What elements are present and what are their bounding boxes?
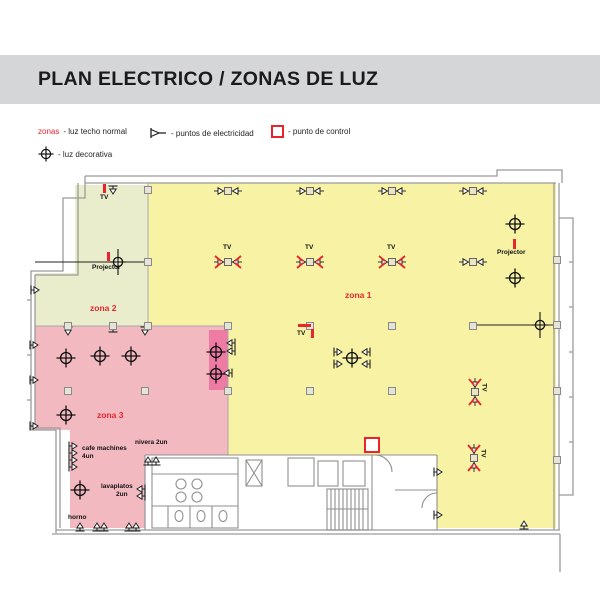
column-marker	[553, 456, 561, 464]
column-marker	[553, 321, 561, 329]
plan-label: Projector	[497, 250, 526, 257]
electric-point-icon	[333, 346, 343, 358]
tv-point-icon	[295, 254, 325, 270]
electric-point-icon	[361, 346, 371, 358]
tv-label: TV	[223, 245, 231, 252]
column-marker	[64, 322, 72, 330]
plan-label: Projector	[92, 265, 121, 272]
electric-point-icon	[361, 358, 371, 370]
column-marker	[553, 387, 561, 395]
electric-point-icon	[130, 522, 142, 532]
decorative-light-icon	[70, 480, 90, 500]
plan-label: nivera 2un	[135, 440, 168, 447]
column-marker	[306, 387, 314, 395]
electric-point-icon	[226, 345, 236, 357]
tv-point-icon	[213, 254, 243, 270]
tv-point-icon	[466, 443, 482, 473]
decorative-light-icon	[56, 348, 76, 368]
red-mark	[298, 324, 311, 327]
tv-point-icon	[467, 377, 483, 407]
tv-label: TV	[387, 245, 395, 252]
electric-point-icon	[223, 367, 233, 379]
plan-label: zona 1	[345, 291, 371, 300]
electric-point-icon	[68, 461, 78, 473]
electric-point-icon	[29, 339, 39, 351]
decorative-light-icon	[121, 346, 141, 366]
electric-point-icon	[458, 183, 488, 199]
plan-label: TV	[100, 195, 108, 202]
column-marker	[469, 322, 477, 330]
column-marker	[109, 322, 117, 330]
column-marker	[388, 387, 396, 395]
electric-point-icon	[29, 420, 39, 432]
red-mark	[103, 184, 106, 193]
electric-point-icon	[98, 522, 110, 532]
electric-point-icon	[29, 374, 39, 386]
electric-point-icon	[433, 509, 443, 521]
electric-point-icon	[136, 490, 146, 502]
plan-label: lavaplatos	[101, 484, 133, 491]
electric-point-icon	[150, 456, 162, 466]
plan-label: zona 3	[97, 411, 123, 420]
electric-point-icon	[433, 466, 443, 478]
electric-point-icon	[518, 520, 530, 530]
tv-point-icon	[377, 254, 407, 270]
column-marker	[64, 387, 72, 395]
column-marker	[144, 186, 152, 194]
column-marker	[144, 322, 152, 330]
decorative-light-icon	[505, 268, 525, 288]
plan-label: 4un	[82, 454, 94, 461]
plan-label: zona 2	[90, 304, 116, 313]
electric-plan-page: { "title": "PLAN ELECTRICO / ZONAS DE LU…	[0, 0, 600, 600]
column-marker	[388, 322, 396, 330]
red-mark	[513, 239, 516, 249]
electric-point-icon	[107, 185, 119, 195]
column-marker	[224, 387, 232, 395]
symbol-layer: TVTVTVTVTVTVProjectorProjectorTVzona 1zo…	[0, 0, 600, 600]
plan-label: horno	[68, 515, 86, 522]
column-marker	[224, 322, 232, 330]
decorative-light-icon	[206, 342, 226, 362]
decorative-light-icon	[56, 405, 76, 425]
electric-point-icon	[213, 183, 243, 199]
control-point	[364, 437, 380, 453]
decorative-light-icon	[90, 346, 110, 366]
tv-label: TV	[305, 245, 313, 252]
electric-point-icon	[295, 183, 325, 199]
electric-point-icon	[30, 284, 40, 296]
electric-point-icon	[377, 183, 407, 199]
red-mark	[311, 329, 314, 338]
red-mark	[107, 252, 110, 261]
electric-point-icon	[74, 522, 86, 532]
decorative-light-icon	[342, 348, 362, 368]
tv-label: TV	[479, 449, 486, 457]
column-marker	[144, 258, 152, 266]
plan-label: 2un	[116, 492, 128, 499]
decorative-light-icon	[505, 214, 525, 234]
tv-label: TV	[480, 383, 487, 391]
column-marker	[553, 256, 561, 264]
column-marker	[141, 387, 149, 395]
electric-point-icon	[333, 358, 343, 370]
line-light-icon	[531, 312, 549, 338]
plan-label: TV	[297, 331, 305, 338]
plan-label: cafe machines	[82, 446, 127, 453]
electric-point-icon	[458, 254, 488, 270]
